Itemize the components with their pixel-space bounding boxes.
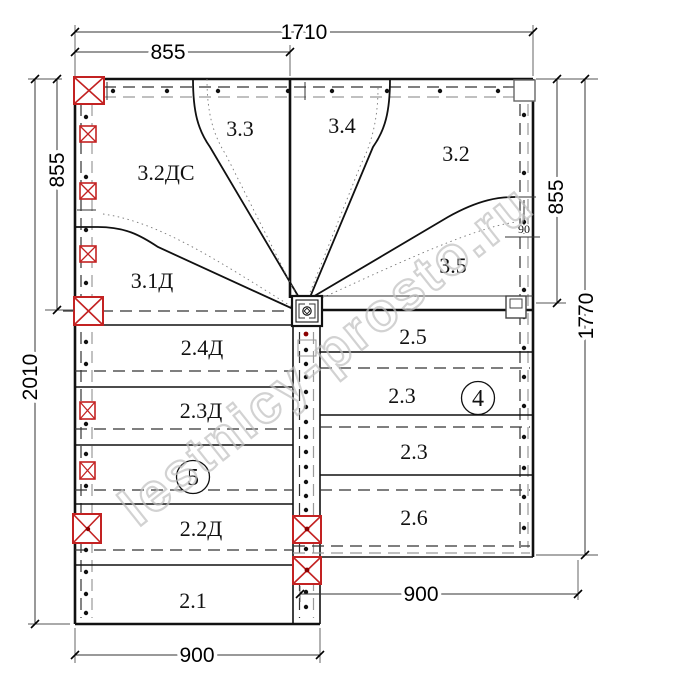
watermark-text: lestnicy-prosto.ru [108, 173, 545, 537]
post-center-1 [293, 516, 321, 543]
step-label-2-1: 2.1 [179, 588, 207, 613]
step-label-2-2d: 2.2Д [180, 516, 223, 541]
newel-posts [73, 77, 321, 584]
post-top-right [514, 80, 535, 101]
winder-label-3-2dc: 3.2ДС [137, 160, 194, 185]
dim-right-total: 1770 [575, 293, 598, 340]
dim-left-total: 2010 [19, 354, 42, 401]
winder-label-3-1d: 3.1Д [131, 268, 174, 293]
dim-bottom-right-width: 900 [403, 583, 438, 606]
dim-bottom-left-width: 900 [179, 644, 214, 667]
dim-left-upper: 855 [46, 152, 69, 187]
baluster-5 [80, 462, 95, 479]
dim-top-left-half: 855 [150, 41, 185, 64]
baluster-2 [80, 183, 96, 199]
baluster-1 [80, 126, 96, 142]
winder-label-3-3: 3.3 [226, 116, 254, 141]
dim-top-total: 1710 [281, 21, 328, 44]
post-left-mid [74, 297, 103, 325]
baluster-4 [80, 402, 95, 419]
post-left-bottom [73, 514, 101, 543]
baluster-3 [80, 246, 96, 262]
winder-label-3-2: 3.2 [442, 141, 470, 166]
stair-plan-svg: 1710 855 855 2010 855 1770 900 900 90 3.… [0, 0, 690, 694]
step-label-2-3a: 2.3 [388, 383, 416, 408]
post-top-left [74, 77, 104, 104]
post-right-mid [506, 296, 526, 318]
stair-plan-drawing: 1710 855 855 2010 855 1770 900 900 90 3.… [0, 0, 690, 694]
right-stringer-band [505, 104, 540, 548]
step-label-2-3b: 2.3 [400, 439, 428, 464]
post-center-2 [293, 557, 321, 584]
step-label-2-4d: 2.4Д [181, 335, 224, 360]
step-label-2-6: 2.6 [400, 505, 428, 530]
flight-marker-4: 4 [472, 386, 484, 412]
winder-label-3-4: 3.4 [328, 113, 356, 138]
dim-right-upper: 855 [545, 179, 568, 214]
